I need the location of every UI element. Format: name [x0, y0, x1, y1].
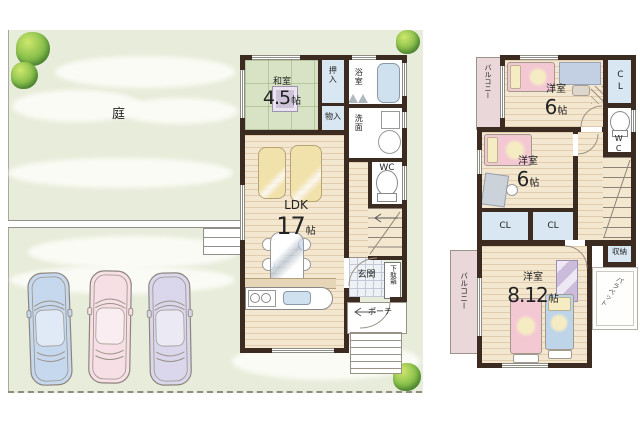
wall [603, 103, 636, 108]
door-swing-arc [581, 106, 602, 127]
room3-label: 洋室 8.12帖 [495, 268, 571, 307]
washroom-label: 洗面 [354, 114, 363, 132]
wall [587, 246, 592, 368]
room1-label: 洋室 6帖 [530, 80, 582, 119]
door-swing-arc [578, 134, 598, 154]
bed-pillow [487, 137, 498, 163]
car-top-view [145, 270, 195, 389]
hall-floor-1f [349, 162, 368, 258]
sofa [258, 147, 286, 199]
bed-footboard [548, 350, 572, 359]
window [240, 185, 245, 240]
wc-label-1f: WC [372, 163, 402, 173]
window [240, 70, 245, 118]
bed-blanket-swirl [515, 315, 537, 337]
car-top-view [24, 269, 76, 389]
window [402, 166, 407, 200]
window [477, 150, 482, 174]
room2-label: 洋室 6帖 [504, 152, 552, 191]
sofa [290, 145, 322, 202]
grass-highlight [120, 98, 238, 124]
floorplan-canvas: 庭 [0, 0, 640, 421]
bed-pillow [510, 65, 521, 89]
washbasin [378, 130, 401, 154]
wall [320, 103, 345, 106]
parapet-area [592, 267, 638, 330]
kitchen-sink [283, 291, 311, 305]
bed-footboard [513, 354, 539, 363]
wc-label-2f: WC [614, 134, 623, 154]
window [352, 55, 376, 60]
wall [349, 104, 402, 108]
window [402, 63, 407, 96]
washing-machine [381, 111, 400, 129]
window [252, 55, 300, 60]
balcony-lower-label: バルコニー [459, 272, 468, 310]
window [631, 110, 636, 132]
cl-right-label: CL [533, 212, 573, 240]
getabako-label: 下駄箱 [388, 265, 395, 285]
stove-burner [261, 293, 271, 303]
bath-door-mark [348, 94, 358, 103]
toilet-tank [377, 193, 397, 202]
window [272, 348, 334, 353]
garden-label: 庭 [112, 108, 125, 123]
grass-highlight [8, 158, 233, 188]
window [502, 363, 548, 368]
bathtub [377, 63, 400, 103]
cl-left-label: CL [482, 212, 528, 240]
oshiire-label: 押入 [328, 66, 337, 84]
window [500, 66, 505, 118]
window [402, 112, 407, 128]
balcony-upper-label: バルコニー [484, 64, 492, 99]
site-boundary-dashed [8, 391, 422, 393]
wall [245, 130, 344, 135]
bath-label: 浴室 [354, 68, 363, 86]
window [477, 278, 482, 336]
cl-top-label: CL [615, 70, 625, 94]
exterior-steps [350, 332, 402, 374]
washitsu-label: 和室 4.5帖 [250, 74, 314, 109]
car-top-view [85, 268, 135, 387]
porch-label: ポーチ [368, 307, 392, 316]
ladder-hatch [591, 86, 603, 104]
door-swing-arc [565, 246, 587, 268]
monoire-label: 物入 [322, 112, 344, 121]
door-opening [581, 127, 602, 132]
wall [477, 240, 636, 246]
stairs-2f-diagonal [603, 157, 631, 240]
grass-highlight [55, 56, 235, 88]
genkan-label: 玄関 [349, 270, 384, 280]
wall [349, 158, 402, 162]
wall [368, 204, 402, 208]
window [520, 55, 558, 60]
wall [603, 262, 636, 267]
stove-burner [250, 293, 260, 303]
bath-door-mark [358, 94, 368, 103]
stairs-arrow-icon [368, 208, 402, 256]
wall [344, 55, 349, 258]
wall [631, 55, 636, 267]
shuno-label: 収納 [606, 248, 633, 257]
ldk-label: LDK 17帖 [262, 198, 330, 240]
garden-steps [203, 227, 242, 255]
bed-blanket-swirl [549, 313, 569, 333]
